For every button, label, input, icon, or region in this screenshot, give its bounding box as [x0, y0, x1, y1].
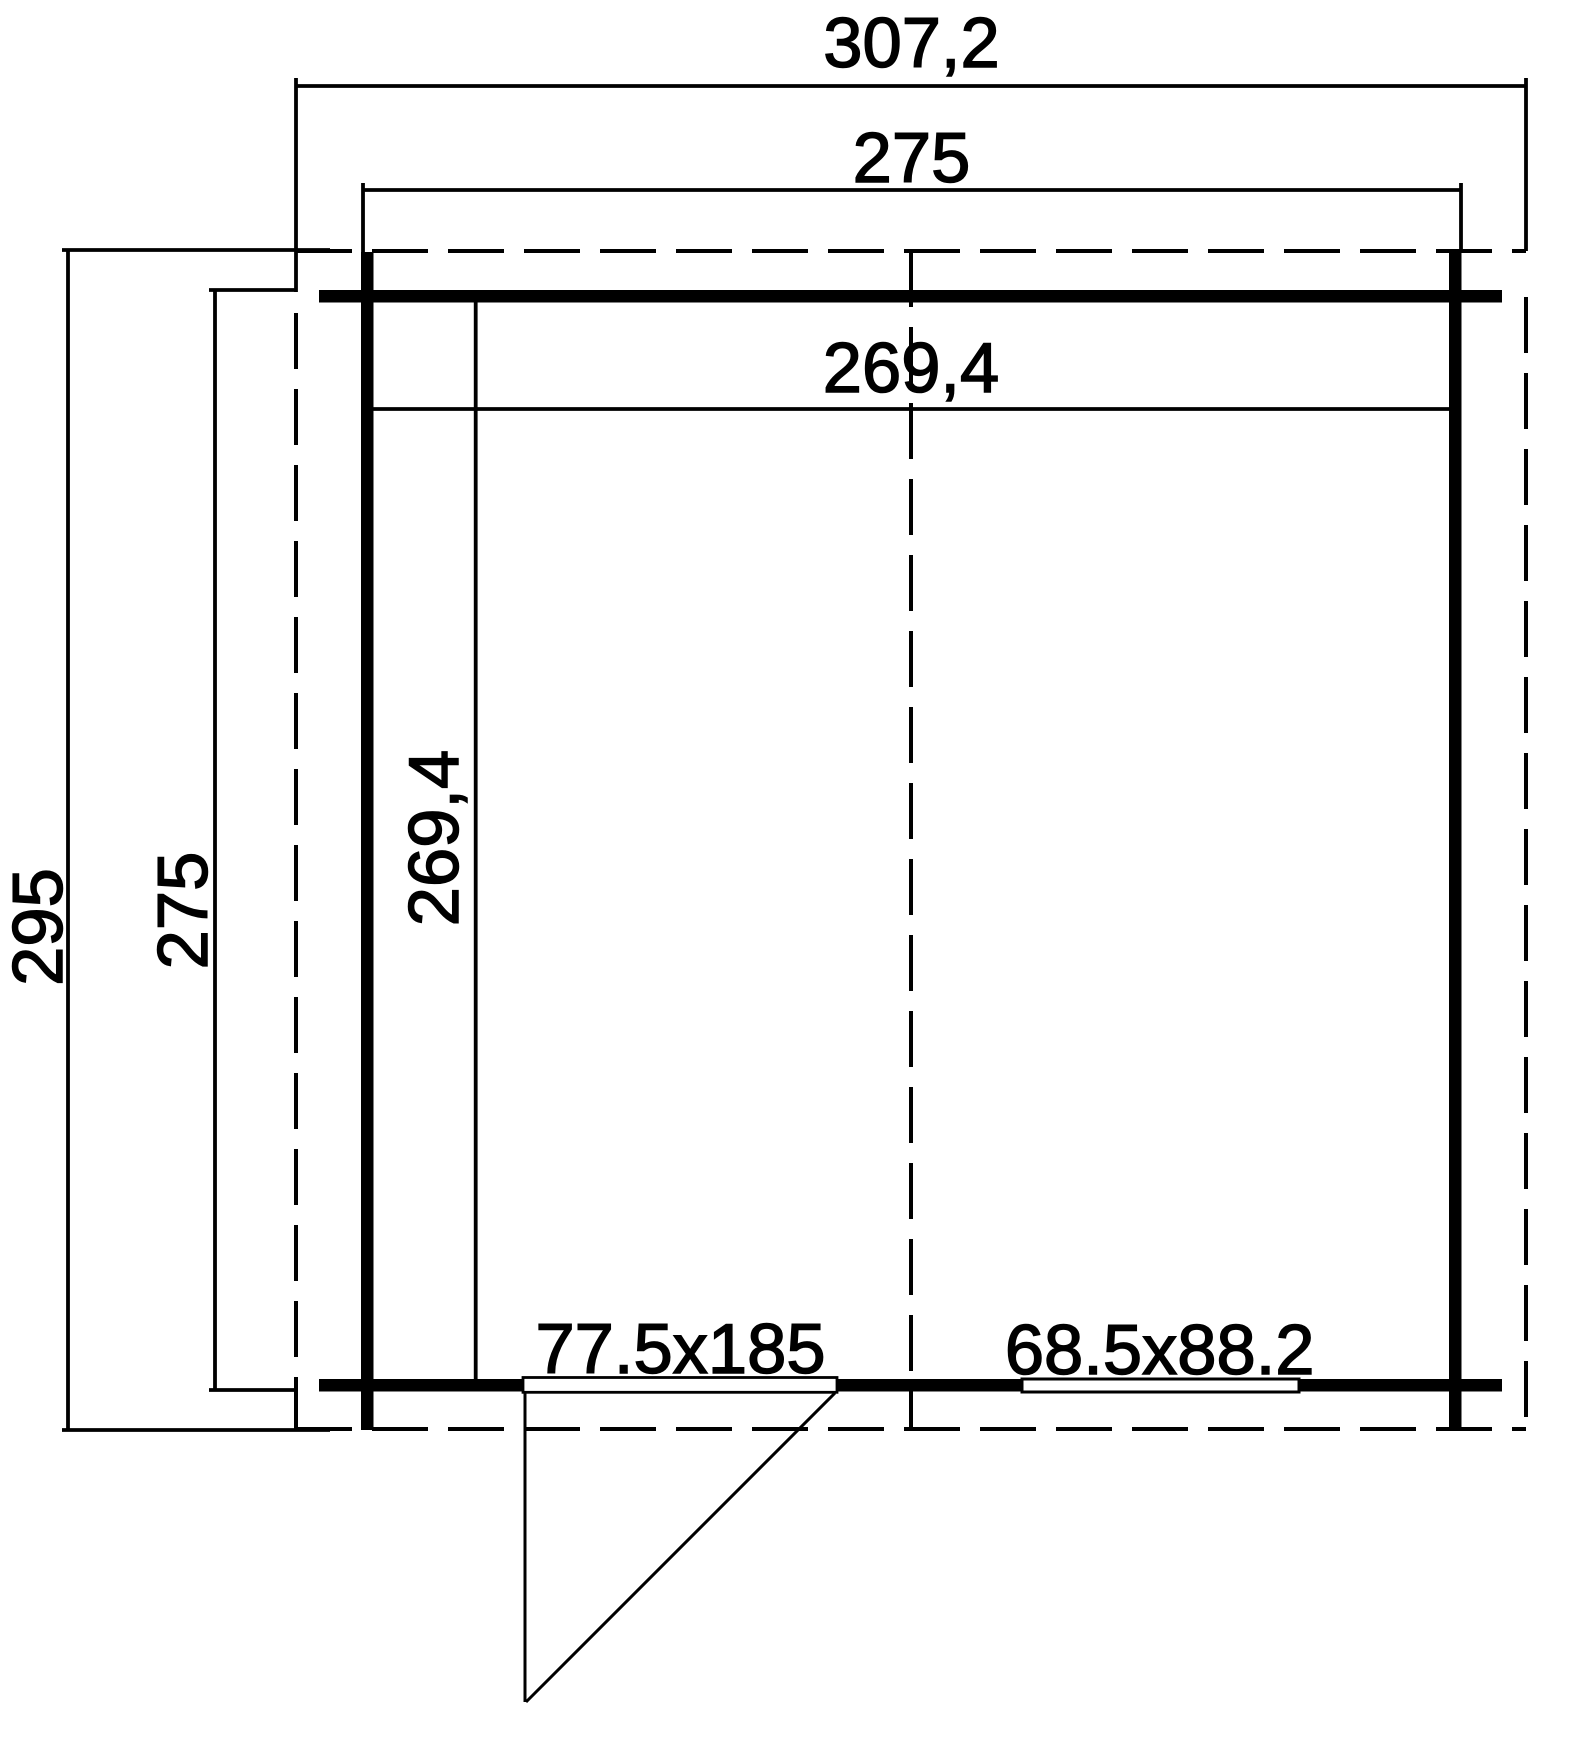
- svg-text:295: 295: [0, 868, 77, 986]
- svg-text:275: 275: [143, 852, 222, 970]
- svg-text:307,2: 307,2: [823, 3, 999, 82]
- svg-text:275: 275: [853, 118, 971, 197]
- svg-text:68.5x88.2: 68.5x88.2: [1005, 1310, 1315, 1389]
- svg-text:269,4: 269,4: [394, 750, 473, 926]
